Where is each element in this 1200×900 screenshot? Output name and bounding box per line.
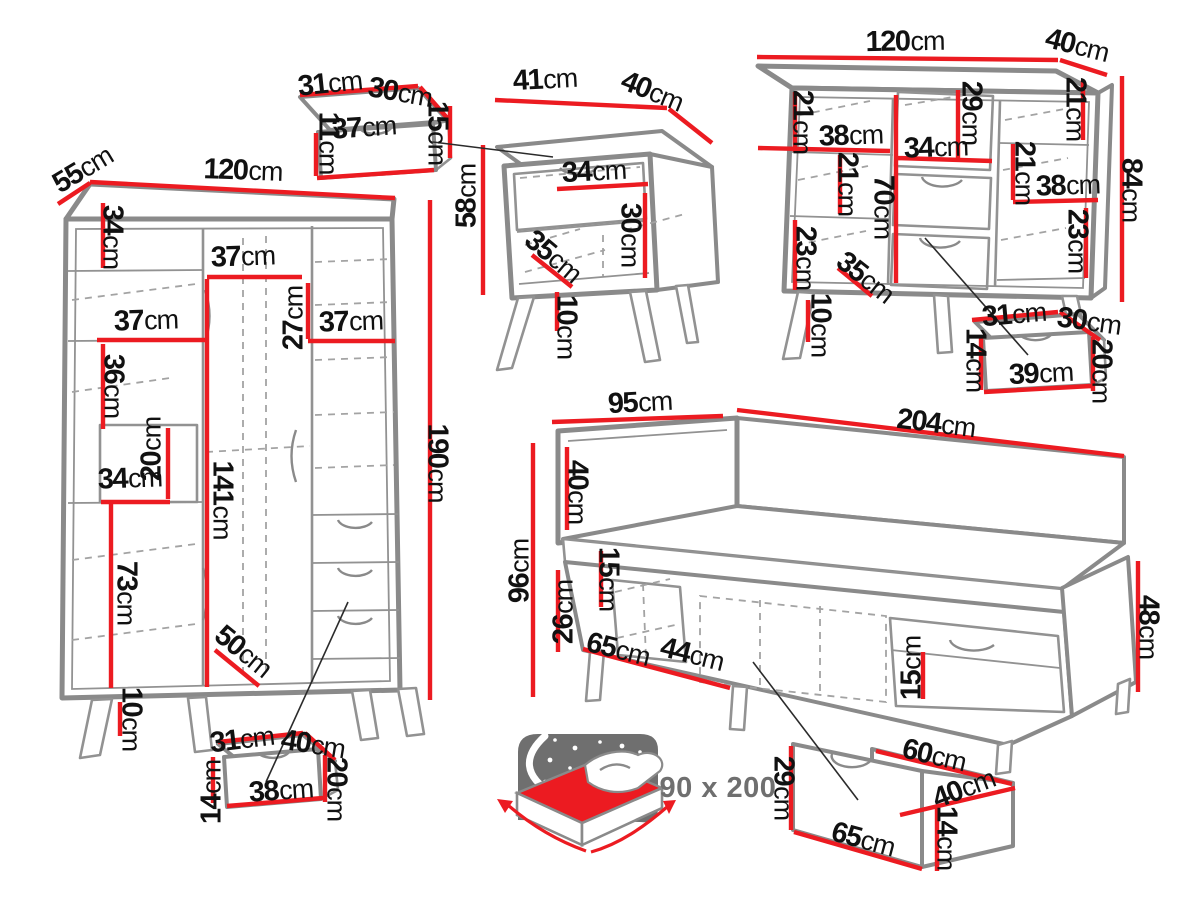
bed-drawer-drawing — [791, 744, 1015, 871]
furniture-dimensions-diagram: 55cm120cm34cm37cm27cm37cm37cm36cm20cm34c… — [0, 0, 1200, 900]
mattress-size-label: 90 x 200 — [658, 772, 778, 805]
nightstand-legs — [497, 285, 698, 370]
wardrobe-drawing — [58, 182, 430, 758]
mattress-size-icon — [497, 734, 676, 852]
nightstand-drawing — [483, 100, 718, 370]
chest-drawer-drawing — [972, 312, 1106, 392]
nightstand-drawer-drawing — [300, 86, 451, 178]
diagram-line-art — [0, 0, 1200, 900]
bed-drawing — [533, 410, 1138, 774]
wardrobe-drawer-drawing — [213, 733, 338, 807]
